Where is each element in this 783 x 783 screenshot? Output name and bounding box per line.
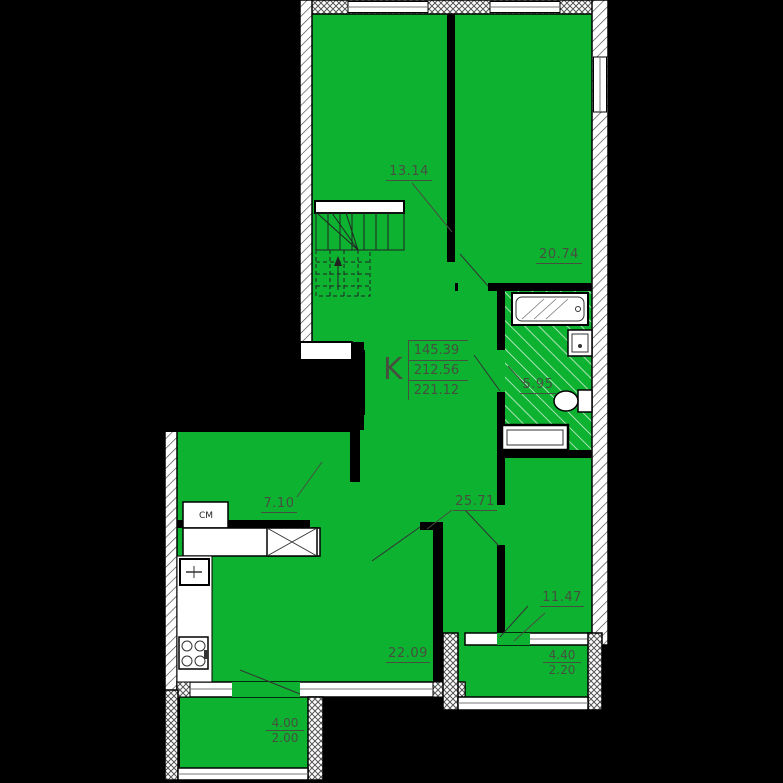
balcony-right-area-label: 4.40 2.20 <box>543 648 581 677</box>
hallway-area-label: 25.71 <box>453 494 497 511</box>
bathtub <box>512 293 588 325</box>
apartment-area-3: 221.12 <box>409 380 468 400</box>
stove <box>179 637 208 669</box>
room-right-area-label: 11.47 <box>540 590 584 607</box>
bathroom-area-label: 5.95 <box>520 377 556 394</box>
apartment-type-letter: K <box>383 355 403 385</box>
apartment-area-2: 212.56 <box>409 360 468 380</box>
kitchen-sink <box>180 559 209 585</box>
balcony-left-area-label: 4.00 2.00 <box>266 716 304 745</box>
ventilation-duct <box>502 425 568 450</box>
room-top-right-area-label: 20.74 <box>536 247 582 264</box>
bathroom-sink <box>568 330 592 356</box>
balcony-right-full-area: 4.40 <box>543 648 581 662</box>
balcony-left-reduced-area: 2.00 <box>266 730 304 745</box>
balcony-left-full-area: 4.00 <box>266 716 304 730</box>
washing-machine-label: СМ <box>184 504 228 528</box>
balcony-right-reduced-area: 2.20 <box>543 662 581 677</box>
apartment-areas: 145.39 212.56 221.12 <box>408 340 468 400</box>
floor-plan: 13.14 20.74 5.95 7.10 25.71 22.09 11.47 … <box>0 0 783 783</box>
apartment-area-1: 145.39 <box>409 340 468 360</box>
room-top-left-area-label: 13.14 <box>386 164 432 181</box>
window-right <box>594 57 607 112</box>
duct-notch <box>300 342 352 360</box>
kitchen-living-area-label: 22.09 <box>386 646 430 663</box>
corridor-area-label: 7.10 <box>261 496 297 513</box>
apartment-title-block: K 145.39 212.56 221.12 <box>383 340 468 400</box>
toilet <box>554 390 592 412</box>
